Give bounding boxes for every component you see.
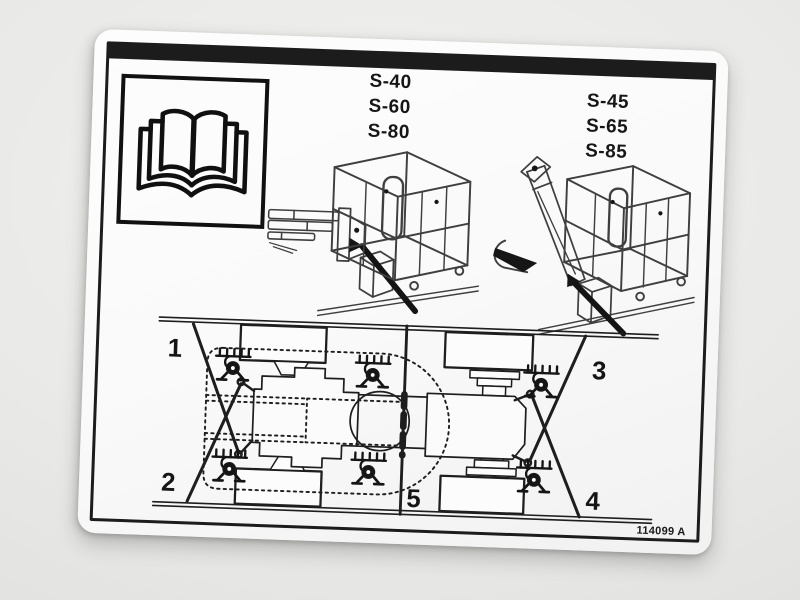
open-book-icon (127, 87, 259, 215)
tie-point-label-3: 3 (592, 357, 607, 385)
platform-basket (330, 150, 471, 292)
stowed-boom (267, 210, 339, 255)
jib-boom-lift-drawing (483, 147, 701, 338)
tie-point-label-5: 5 (406, 485, 421, 513)
photo-background: S-40 S-60 S-80 S-45 S-65 S-85 (0, 0, 800, 600)
read-manual-symbol-box (116, 74, 269, 229)
tie-point-label-1: 1 (167, 334, 182, 362)
stowed-boom-lift-drawing (265, 129, 486, 327)
model-name: S-40 (369, 69, 450, 97)
platform-basket (563, 164, 691, 302)
model-name: S-60 (368, 94, 449, 122)
part-number: 114099 A (636, 525, 685, 539)
tie-point-label-4: 4 (585, 488, 601, 517)
model-name: S-65 (586, 113, 667, 141)
lashing-point-icon (351, 452, 386, 484)
chassis-top-view-diagram: 1 2 3 4 5 (140, 311, 671, 530)
tie-point-label-2: 2 (161, 469, 176, 497)
instruction-decal: S-40 S-60 S-80 S-45 S-65 S-85 (77, 29, 729, 555)
model-name: S-45 (587, 88, 668, 116)
lashing-point-icon (355, 355, 390, 387)
